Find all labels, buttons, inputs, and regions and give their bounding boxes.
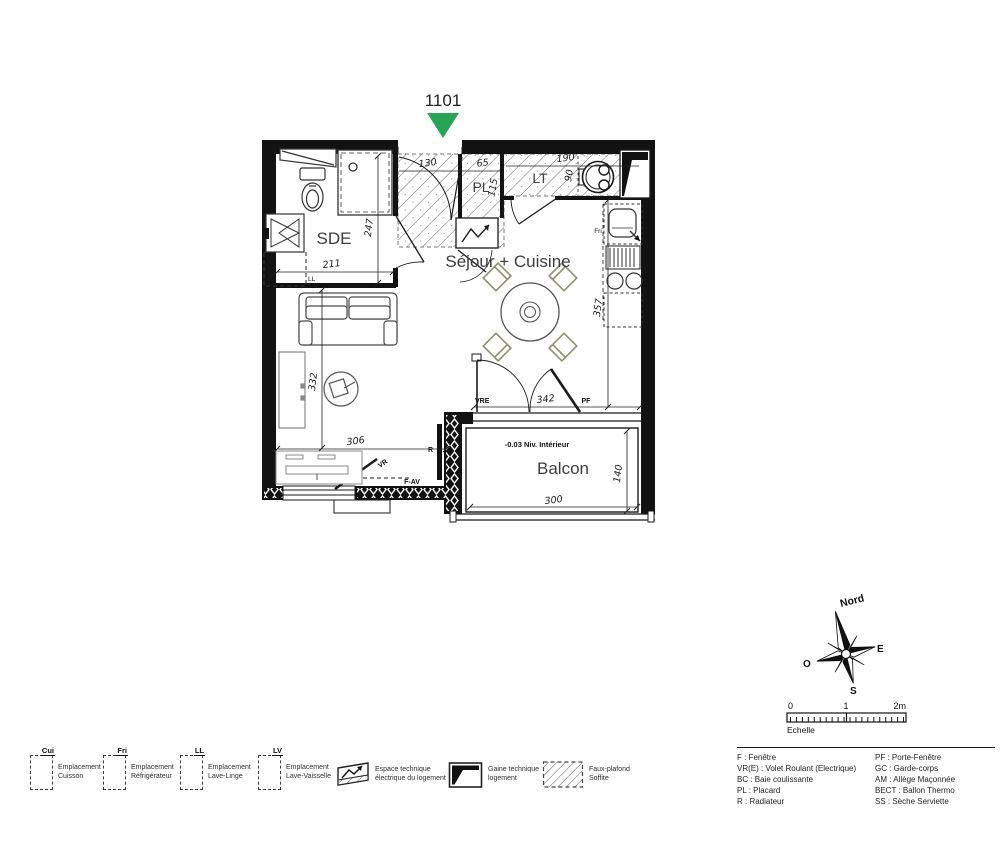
- sde-cabinet: [280, 149, 336, 167]
- abbr-row: AM : Allège Maçonnée: [875, 774, 995, 785]
- svg-text:211: 211: [322, 258, 341, 271]
- svg-text:2m: 2m: [893, 701, 906, 711]
- radiator: [437, 424, 442, 480]
- svg-text:190: 190: [556, 152, 575, 165]
- abbr-row: BC : Baie coulissante: [737, 774, 875, 785]
- svg-text:65: 65: [476, 157, 489, 169]
- svg-text:PF: PF: [582, 398, 592, 405]
- tv-console: [276, 451, 362, 484]
- scale-label: Echelle: [787, 725, 815, 735]
- compass-north-label: Nord: [839, 592, 866, 610]
- washbasin: [263, 214, 304, 252]
- level-note: -0.03 Niv. Intérieur: [505, 440, 570, 449]
- abbr-row: PF : Porte-Fenêtre: [875, 752, 995, 763]
- abbr-row: PL : Placard: [737, 785, 875, 796]
- abbreviations-block: F : Fenêtre VR(E) : Volet Roulant (Elect…: [737, 747, 995, 807]
- svg-text:342: 342: [536, 393, 555, 406]
- unit-marker[interactable]: 1101: [425, 91, 462, 138]
- room-label-balcon: Balcon: [537, 459, 589, 478]
- room-label-pl: PL: [472, 179, 489, 195]
- technical-duct: [620, 150, 650, 198]
- svg-text:LL: LL: [308, 276, 316, 283]
- abbr-row: R : Radiateur: [737, 796, 875, 807]
- room-label-sde: SDE: [317, 229, 352, 248]
- floor-plan-page: 1101: [0, 0, 1000, 857]
- svg-text:VRE: VRE: [475, 398, 490, 405]
- lt-door: [511, 198, 557, 224]
- svg-text:R: R: [428, 447, 433, 454]
- room-label-sejour: Séjour + Cuisine: [445, 252, 570, 271]
- svg-text:140: 140: [612, 464, 625, 483]
- shower: [338, 150, 392, 215]
- svg-text:1: 1: [843, 701, 848, 711]
- compass-south-label: S: [850, 686, 857, 697]
- compass-west-label: O: [803, 659, 811, 670]
- toilet: [300, 168, 325, 211]
- floor-plan-drawing: 1101: [0, 0, 1000, 857]
- compass-icon: Nord E O S: [803, 592, 884, 697]
- svg-text:90: 90: [563, 169, 576, 183]
- scale-bar: 0 1 2m Echelle: [787, 701, 906, 735]
- abbr-row: SS : Sèche Serviette: [875, 796, 995, 807]
- unit-number: 1101: [425, 91, 462, 110]
- unit-pin-icon: [427, 113, 459, 138]
- svg-text:357: 357: [592, 298, 605, 317]
- abbr-row: VR(E) : Volet Roulant (Electrique): [737, 763, 875, 774]
- svg-text:247: 247: [363, 218, 376, 237]
- abbr-row: BECT : Ballon Thermo: [875, 785, 995, 796]
- coffee-table: [324, 372, 358, 406]
- abbr-row: GC : Garde-corps: [875, 763, 995, 774]
- svg-text:0: 0: [788, 701, 793, 711]
- dining-set: [483, 263, 576, 361]
- svg-text:Fri: Fri: [594, 228, 602, 235]
- room-label-lt: LT: [532, 170, 548, 186]
- svg-text:F-AV: F-AV: [404, 479, 420, 486]
- svg-text:300: 300: [544, 494, 563, 507]
- side-cabinet: [279, 352, 305, 428]
- kitchen: [603, 204, 642, 327]
- svg-text:306: 306: [346, 435, 365, 448]
- svg-text:VR: VR: [377, 458, 389, 469]
- svg-text:332: 332: [307, 372, 320, 391]
- compass-east-label: E: [877, 644, 884, 655]
- sofa: [299, 293, 397, 345]
- svg-text:130: 130: [418, 157, 437, 170]
- abbr-row: F : Fenêtre: [737, 752, 875, 763]
